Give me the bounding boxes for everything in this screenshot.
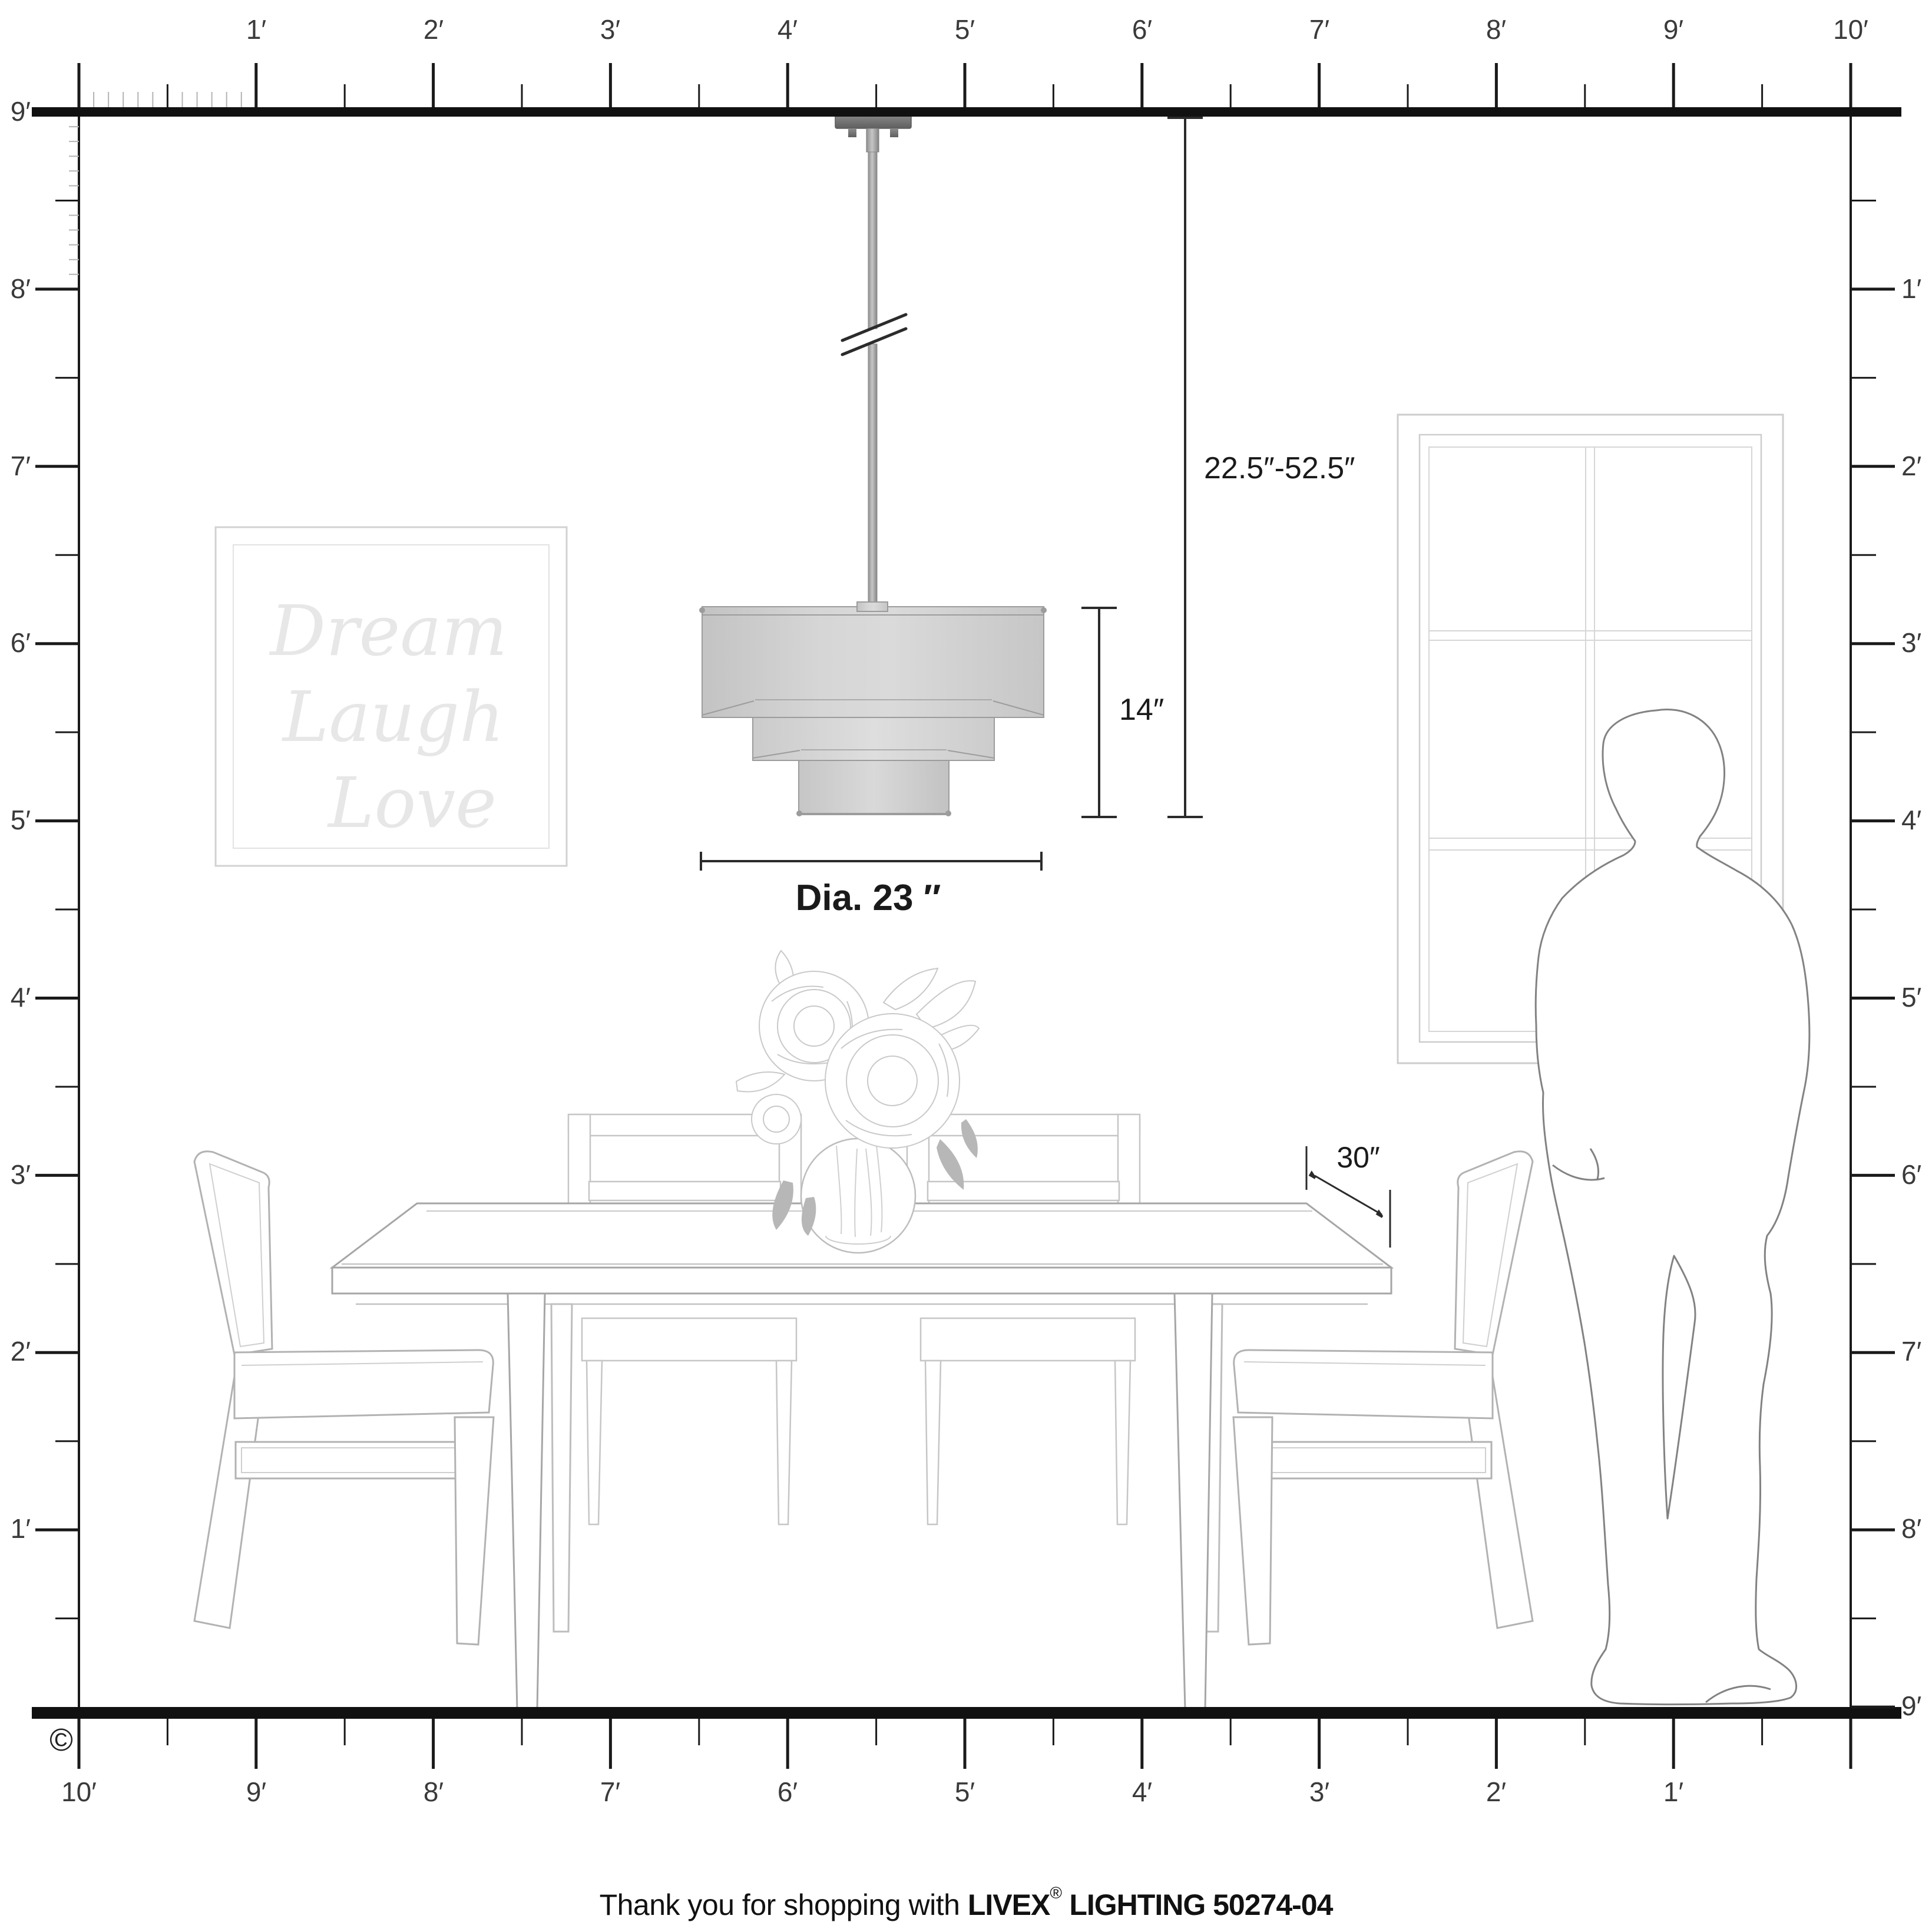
ruler-right-label: 1′ [1901,273,1921,304]
table-leg-front-right [1175,1293,1212,1709]
flower-vase [801,1139,915,1253]
caption-prefix: Thank you for shopping with [600,1888,968,1921]
ruler-top-label: 8′ [1486,14,1506,45]
floor-line [32,1707,1901,1719]
registered-mark: ® [1050,1884,1061,1902]
wall-art-line2: Laugh [282,676,504,757]
ruler-left-label: 5′ [11,805,31,835]
person-outline [1536,709,1809,1704]
table-leg-back-left [551,1304,572,1632]
ruler-top-label: 9′ [1663,14,1683,45]
chair-seat [1234,1350,1493,1418]
ruler-top-label: 3′ [600,14,620,45]
ruler-left-label: 8′ [11,273,31,304]
diameter-dimension [701,852,1041,871]
table-apron [332,1268,1391,1293]
chair-back-post [1455,1152,1533,1355]
chair-back-post [194,1152,272,1355]
ruler-top-label: 5′ [955,14,975,45]
ruler-bottom-label: 3′ [1309,1776,1329,1807]
table-depth-label: 30″ [1336,1141,1379,1174]
ruler-left-label: 6′ [11,627,31,658]
wall-art-frame: Dream Laugh Love [216,527,567,866]
ruler-bottom-label: 6′ [778,1776,798,1807]
ruler-right-label: 5′ [1901,982,1921,1013]
ruler-top-label: 6′ [1132,14,1152,45]
ruler-right-label: 3′ [1901,627,1921,658]
wall-art-line3: Love [327,762,497,843]
hang-range-label: 22.5″-52.5″ [1204,451,1355,485]
ruler-bottom-label: 5′ [955,1776,975,1807]
ruler-bottom-label: 10′ [61,1776,97,1807]
dining-set [194,951,1533,1709]
chair-back-left [568,1114,801,1524]
ruler-top-label: 4′ [778,14,798,45]
ruler-left-label: 7′ [11,451,31,481]
ruler-right-label: 4′ [1901,805,1921,835]
fixture-height-label: 14″ [1119,693,1164,727]
chair-seat [234,1350,493,1418]
hang-height-dimension [1167,117,1203,818]
ruler-bottom-label: 8′ [424,1776,444,1807]
glass-vase [801,1139,915,1253]
pendant-dimension-diagram: Dream Laugh Love [0,0,1932,1932]
ruler-bottom-label: 7′ [600,1776,620,1807]
person-silhouette [1536,709,1809,1704]
ruler-top-label: 10′ [1833,14,1868,45]
hang-rod-lower [868,344,877,609]
table-leg-front-left [508,1293,545,1709]
three-tier-shade [700,602,1046,816]
chair-back-right [907,1114,1140,1524]
hang-rod-upper [868,152,877,329]
ruler-left-label: 3′ [11,1159,31,1190]
fixture-height-dimension [1081,607,1117,818]
ceiling-line [32,107,1901,117]
ruler-top-label: 2′ [424,14,444,45]
diameter-label: Dia. 23 ″ [796,878,941,918]
ruler-left-label: 1′ [11,1513,31,1544]
ruler-top-label: 7′ [1309,14,1329,45]
chair-front-leg [1233,1417,1272,1645]
brand-name: LIVEX [968,1888,1050,1921]
caption-model: LIGHTING 50274-04 [1061,1888,1332,1921]
ruler-left-label: 9′ [11,96,31,127]
ruler-left-label: 2′ [11,1336,31,1367]
ruler-bottom-label: 4′ [1132,1776,1152,1807]
ruler-right-label: 9′ [1901,1690,1921,1721]
copyright-symbol: © [49,1722,73,1758]
ruler-right-label: 7′ [1901,1336,1921,1367]
pendant-light [700,113,1046,816]
ruler-bottom-label: 2′ [1486,1776,1506,1807]
ruler-top-label: 1′ [246,14,266,45]
ruler-right-label: 2′ [1901,451,1921,481]
canopy-nub [848,128,856,137]
canopy-nub [890,128,898,137]
wall-art-line1: Dream [269,590,507,671]
ruler-bottom-label: 9′ [246,1776,266,1807]
rod-coupler [866,128,879,152]
ruler-right-label: 6′ [1901,1159,1921,1190]
ruler-right-label: 8′ [1901,1513,1921,1544]
shade-hub [857,602,888,611]
ruler-left-label: 4′ [11,982,31,1013]
chair-front-leg [455,1417,494,1645]
ruler-bottom-label: 1′ [1663,1776,1683,1807]
footer-caption: Thank you for shopping with LIVEX® LIGHT… [0,1884,1932,1922]
